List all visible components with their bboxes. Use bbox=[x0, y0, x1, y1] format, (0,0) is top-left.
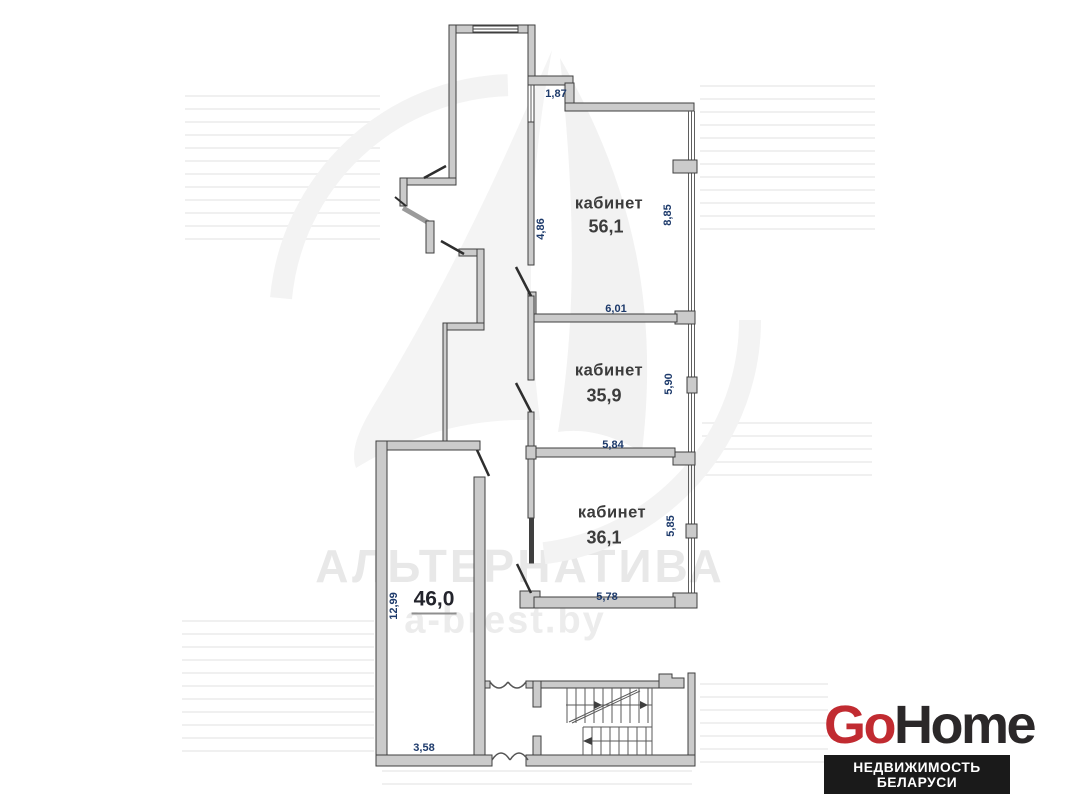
room-2-label: кабинет bbox=[575, 362, 643, 381]
watermark-swirl bbox=[280, 50, 750, 555]
dim-room3-bottom: 5,78 bbox=[596, 591, 617, 603]
dim-room2-right: 5,90 bbox=[663, 373, 675, 394]
room-1-area: 56,1 bbox=[588, 217, 623, 238]
room-3-label: кабинет bbox=[578, 504, 646, 523]
dim-room1-right: 8,85 bbox=[662, 204, 674, 225]
dim-room3-right: 5,85 bbox=[665, 515, 677, 536]
logo-go: Go bbox=[824, 695, 894, 755]
dim-shaft-top: 1,87 bbox=[545, 88, 566, 100]
room-3-area: 36,1 bbox=[586, 528, 621, 549]
gohome-wordmark: GoHome bbox=[824, 698, 1014, 753]
dim-room4-left: 12,99 bbox=[388, 592, 400, 620]
logo-home: Home bbox=[894, 695, 1034, 755]
dim-room1-left: 4,86 bbox=[535, 218, 547, 239]
gohome-logo: GoHome НЕДВИЖИМОСТЬ БЕЛАРУСИ bbox=[824, 698, 1014, 794]
floorplan-page: АЛЬТЕРНАТИВА a-brest.by bbox=[0, 0, 1068, 800]
dim-room2-bottom: 5,84 bbox=[602, 439, 623, 451]
dim-room4-bottom: 3,58 bbox=[413, 742, 434, 754]
dim-room2-top: 6,01 bbox=[605, 303, 626, 315]
floorplan-drawing bbox=[0, 0, 1068, 800]
room-4-area: 46,0 bbox=[412, 588, 457, 615]
staircase bbox=[566, 688, 652, 755]
door-swing-arcs bbox=[490, 682, 528, 760]
room-1-label: кабинет bbox=[575, 195, 643, 214]
logo-tagline: НЕДВИЖИМОСТЬ БЕЛАРУСИ bbox=[824, 755, 1010, 794]
room-2-area: 35,9 bbox=[586, 386, 621, 407]
